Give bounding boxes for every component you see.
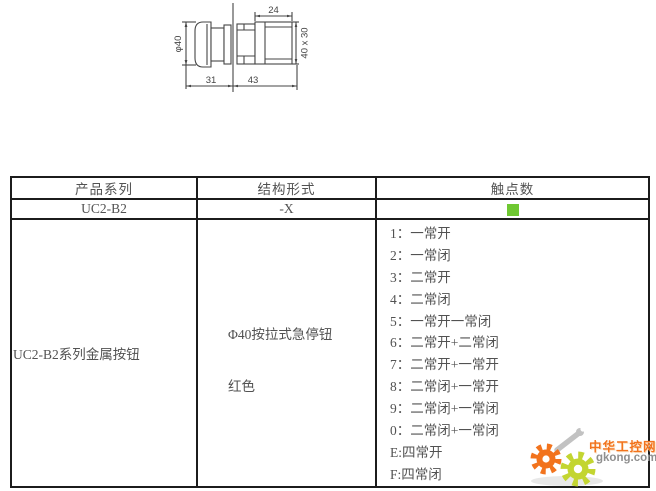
mushroom-cap-outline	[195, 22, 211, 67]
header-structure-form: 结构形式	[197, 177, 376, 199]
color-description: 红色	[228, 375, 255, 395]
contact-option-item: 7：二常开+一常开	[390, 354, 648, 376]
model-structure-value: -X	[197, 199, 376, 219]
button-dimension-drawing: φ40 24 40 x 30 31 43	[170, 2, 310, 95]
dim-label-head-depth: 31	[206, 75, 217, 86]
green-marker	[507, 204, 519, 216]
contact-option-item: 2：一常闭	[390, 245, 648, 267]
model-series-value: UC2-B2	[11, 199, 197, 219]
header-product-series: 产品系列	[11, 177, 197, 199]
header-contact-count: 触点数	[376, 177, 649, 199]
button-body-outline	[255, 22, 292, 64]
contact-option-item: 8：二常闭+一常开	[390, 376, 648, 398]
watermark-site-url: gkong.com	[596, 452, 656, 464]
contact-option-item: 9：二常闭+一常闭	[390, 398, 648, 420]
model-contact-cell	[376, 199, 649, 219]
contact-option-item: 4：二常闭	[390, 289, 648, 311]
table-header-row: 产品系列 结构形式 触点数	[11, 177, 649, 199]
contact-option-item: 6：二常开+二常闭	[390, 332, 648, 354]
gkong-watermark: 中华工控网 gkong.com	[523, 424, 656, 488]
series-description: UC2-B2系列金属按钮	[11, 219, 197, 487]
dim-label-top-width: 24	[268, 5, 279, 16]
wrench-icon	[557, 426, 586, 450]
dim-label-body-depth: 43	[248, 75, 259, 86]
contact-option-item: 1：一常开	[390, 223, 648, 245]
spec-sheet-page: φ40 24 40 x 30 31 43 产品系列 结构形式 触点数 UC2-B…	[0, 0, 656, 491]
contact-option-item: 5：一常开一常闭	[390, 311, 648, 333]
model-code-row: UC2-B2 -X	[11, 199, 649, 219]
structure-description-cell: Φ40按拉式急停钮 红色	[197, 219, 376, 487]
dim-label-side: 40 x 30	[300, 27, 311, 58]
contact-option-item: 3：二常开	[390, 267, 648, 289]
drawing-canvas: φ40 24 40 x 30 31 43	[170, 2, 310, 95]
structure-description: Φ40按拉式急停钮	[228, 323, 332, 343]
dim-label-diameter: φ40	[173, 36, 184, 53]
